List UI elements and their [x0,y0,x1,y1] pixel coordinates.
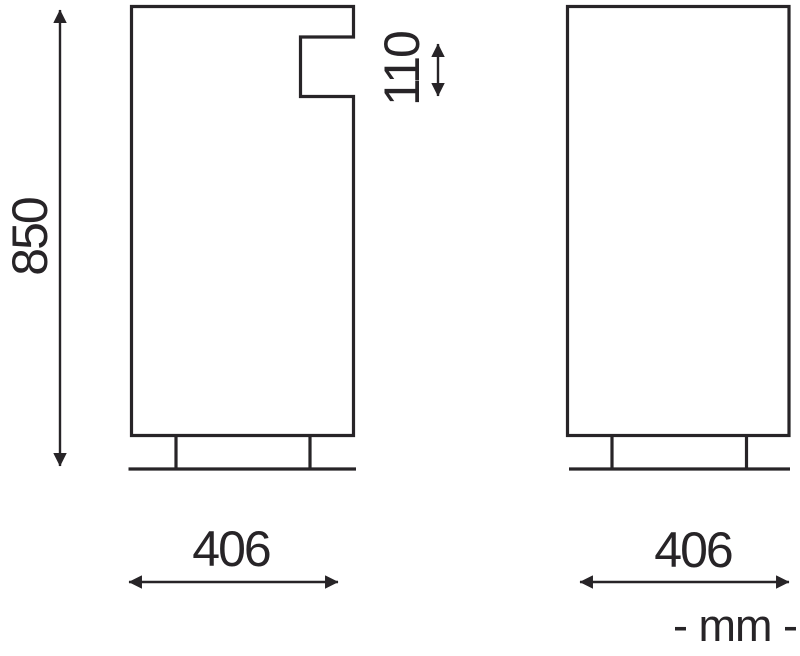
recess-dimension-label: 110 [374,32,430,106]
front-width-dimension-label: 406 [192,521,270,577]
side-view-outline [568,7,790,436]
height-dimension-label: 850 [2,198,58,276]
units-note-label: - mm - [673,600,797,651]
dimension-drawing: 850 110 406 406 - mm - [0,0,800,656]
dimension-drawing-canvas: 850 110 406 406 - mm - [0,0,800,656]
front-view-outline [132,7,354,436]
side-width-dimension-label: 406 [654,522,732,578]
